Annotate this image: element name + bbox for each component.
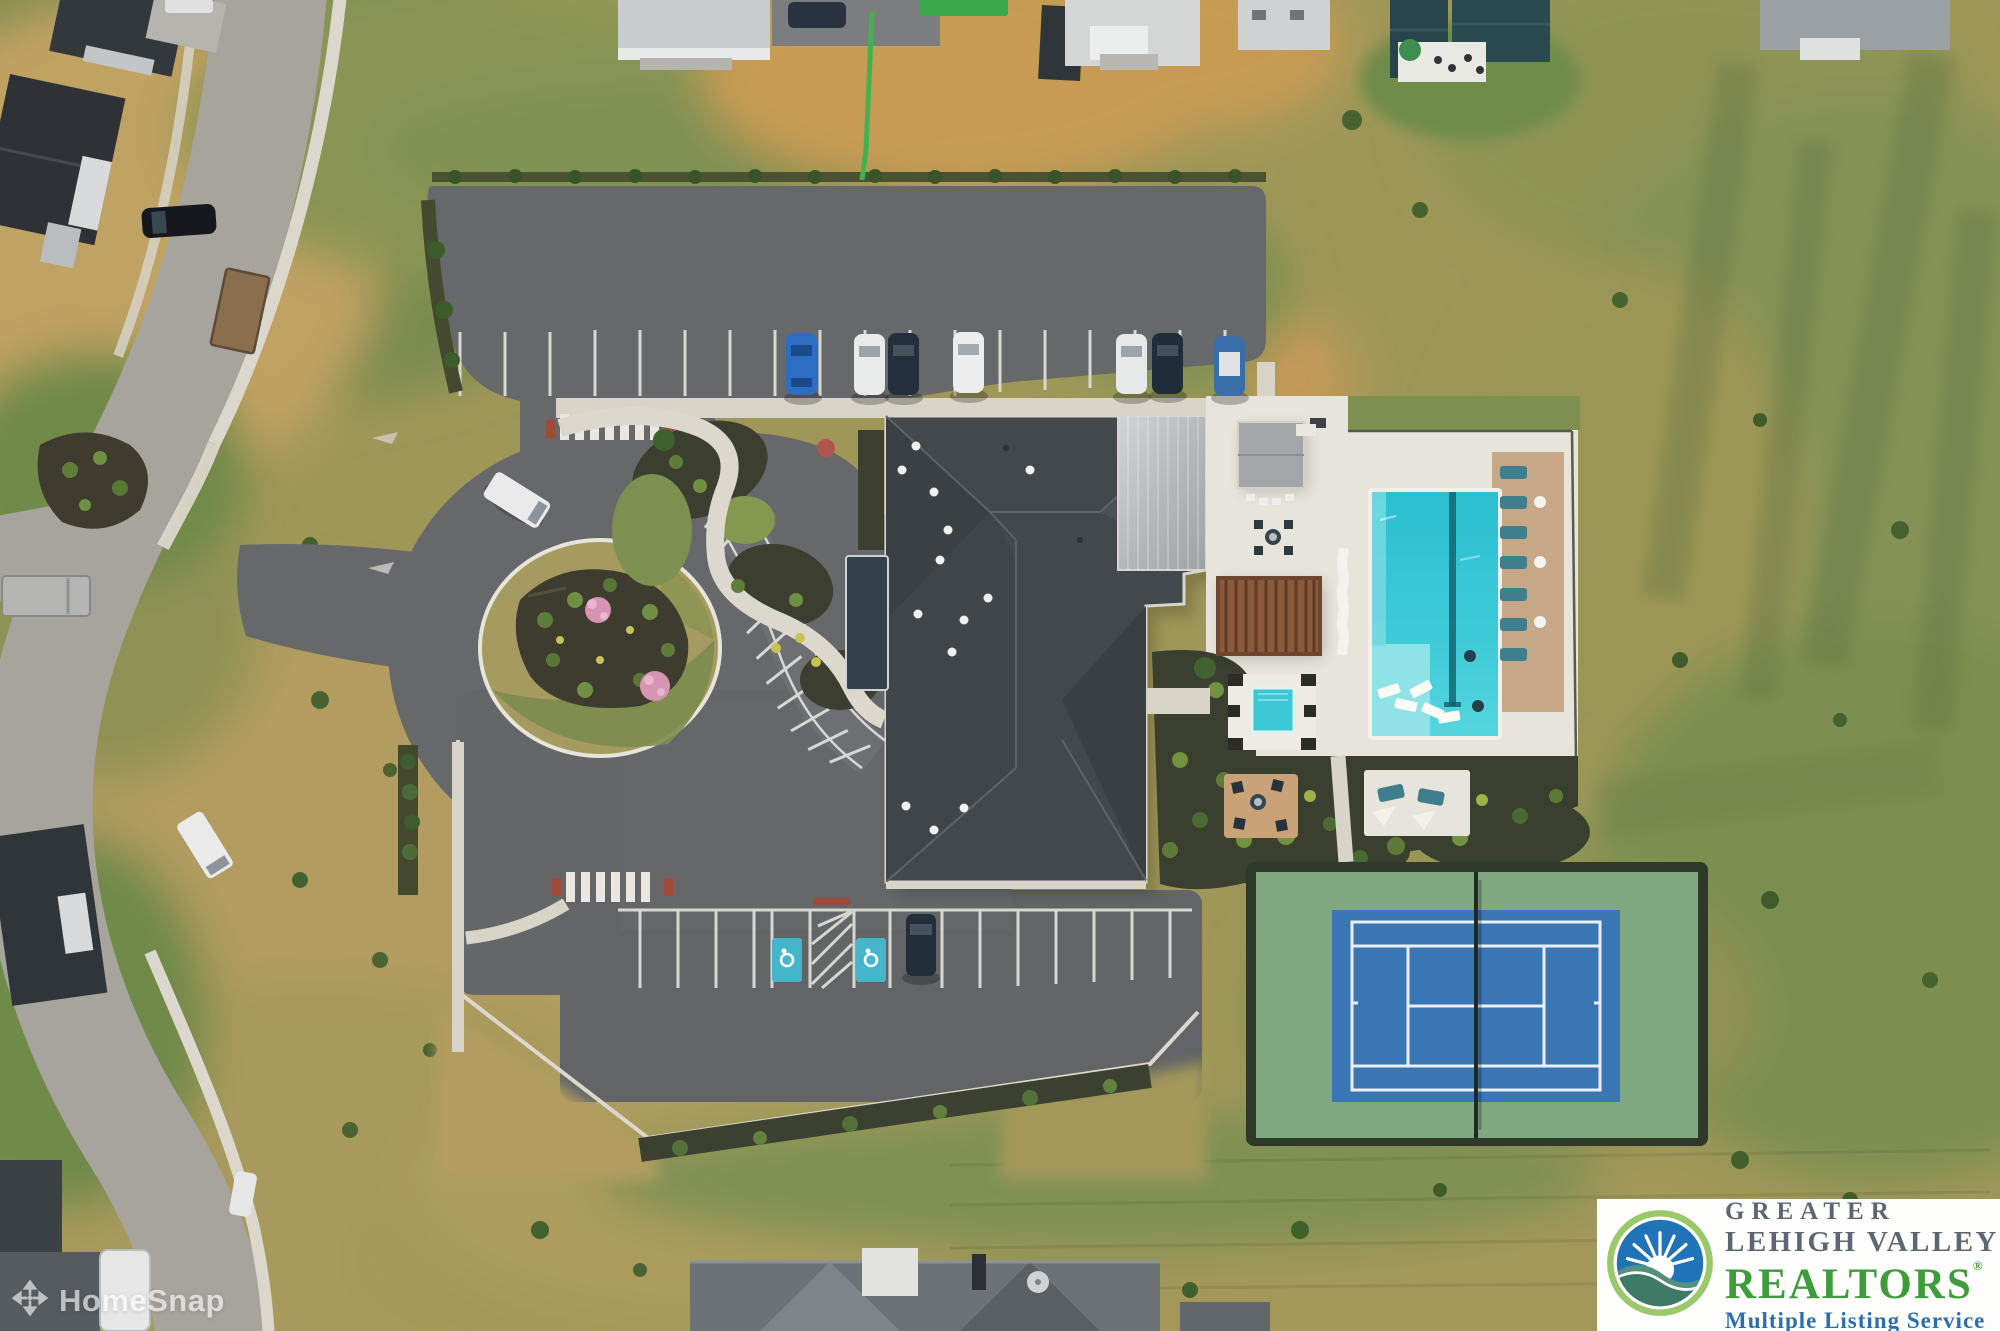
parked-car: [784, 333, 822, 405]
pergola: [1218, 578, 1324, 658]
metal-roof-section: [1118, 416, 1206, 570]
accessible-stall: [856, 938, 886, 982]
parked-car: [885, 333, 923, 405]
mls-logo-box: GREATER LEHIGH VALLEY REALTORS® Multiple…: [1597, 1199, 2000, 1331]
homesnap-label: HomeSnap: [59, 1283, 225, 1319]
parked-car: [788, 2, 846, 28]
entrance-canopy: [846, 556, 888, 690]
homesnap-watermark: HomeSnap: [10, 1278, 225, 1323]
umbrella: [1534, 496, 1546, 508]
south-pad-loungers: [1364, 770, 1470, 836]
deck: [862, 1248, 918, 1296]
firepit-lounge: [1224, 774, 1298, 838]
parked-car: [1211, 336, 1249, 405]
mls-tagline: Multiple Listing Service: [1725, 1309, 1999, 1331]
swimming-pool: [1368, 488, 1502, 740]
aerial-scene: [0, 0, 2000, 1331]
pool-area: [1146, 396, 1590, 889]
mls-line2: LEHIGH VALLEY: [1725, 1228, 1999, 1257]
accessible-stall: [772, 938, 802, 982]
green-dumpster: [920, 0, 1008, 16]
parked-car-lower: [902, 914, 940, 985]
pool-gate: [1296, 424, 1316, 436]
parked-car: [1149, 333, 1187, 403]
tennis-court: [1246, 862, 1708, 1146]
traffic-island: [480, 540, 720, 756]
aerial-photo-stage: HomeSnap GREATER LEHIGH VALLEY REALTORS: [0, 0, 2000, 1331]
parked-car: [851, 334, 889, 405]
parked-car: [165, 0, 213, 13]
parked-car: [950, 332, 988, 403]
mls-line1: GREATER: [1725, 1199, 1999, 1224]
spa: [1228, 674, 1316, 750]
suv: [141, 203, 217, 238]
umbrella: [1534, 556, 1546, 568]
homesnap-arrows-icon: [10, 1278, 50, 1323]
umbrella: [1534, 616, 1546, 628]
parked-car: [1113, 334, 1151, 404]
box-trailer: [2, 576, 90, 616]
mls-logo-text: GREATER LEHIGH VALLEY REALTORS® Multiple…: [1725, 1199, 1999, 1331]
mls-line3: REALTORS®: [1725, 1259, 1999, 1306]
green-umbrella: [1399, 39, 1421, 61]
registered-mark: ®: [1973, 1258, 1983, 1273]
sunrise-over-hills-icon: [1606, 1209, 1714, 1322]
lane-line: [1449, 492, 1456, 706]
paver-band: [1492, 452, 1564, 712]
